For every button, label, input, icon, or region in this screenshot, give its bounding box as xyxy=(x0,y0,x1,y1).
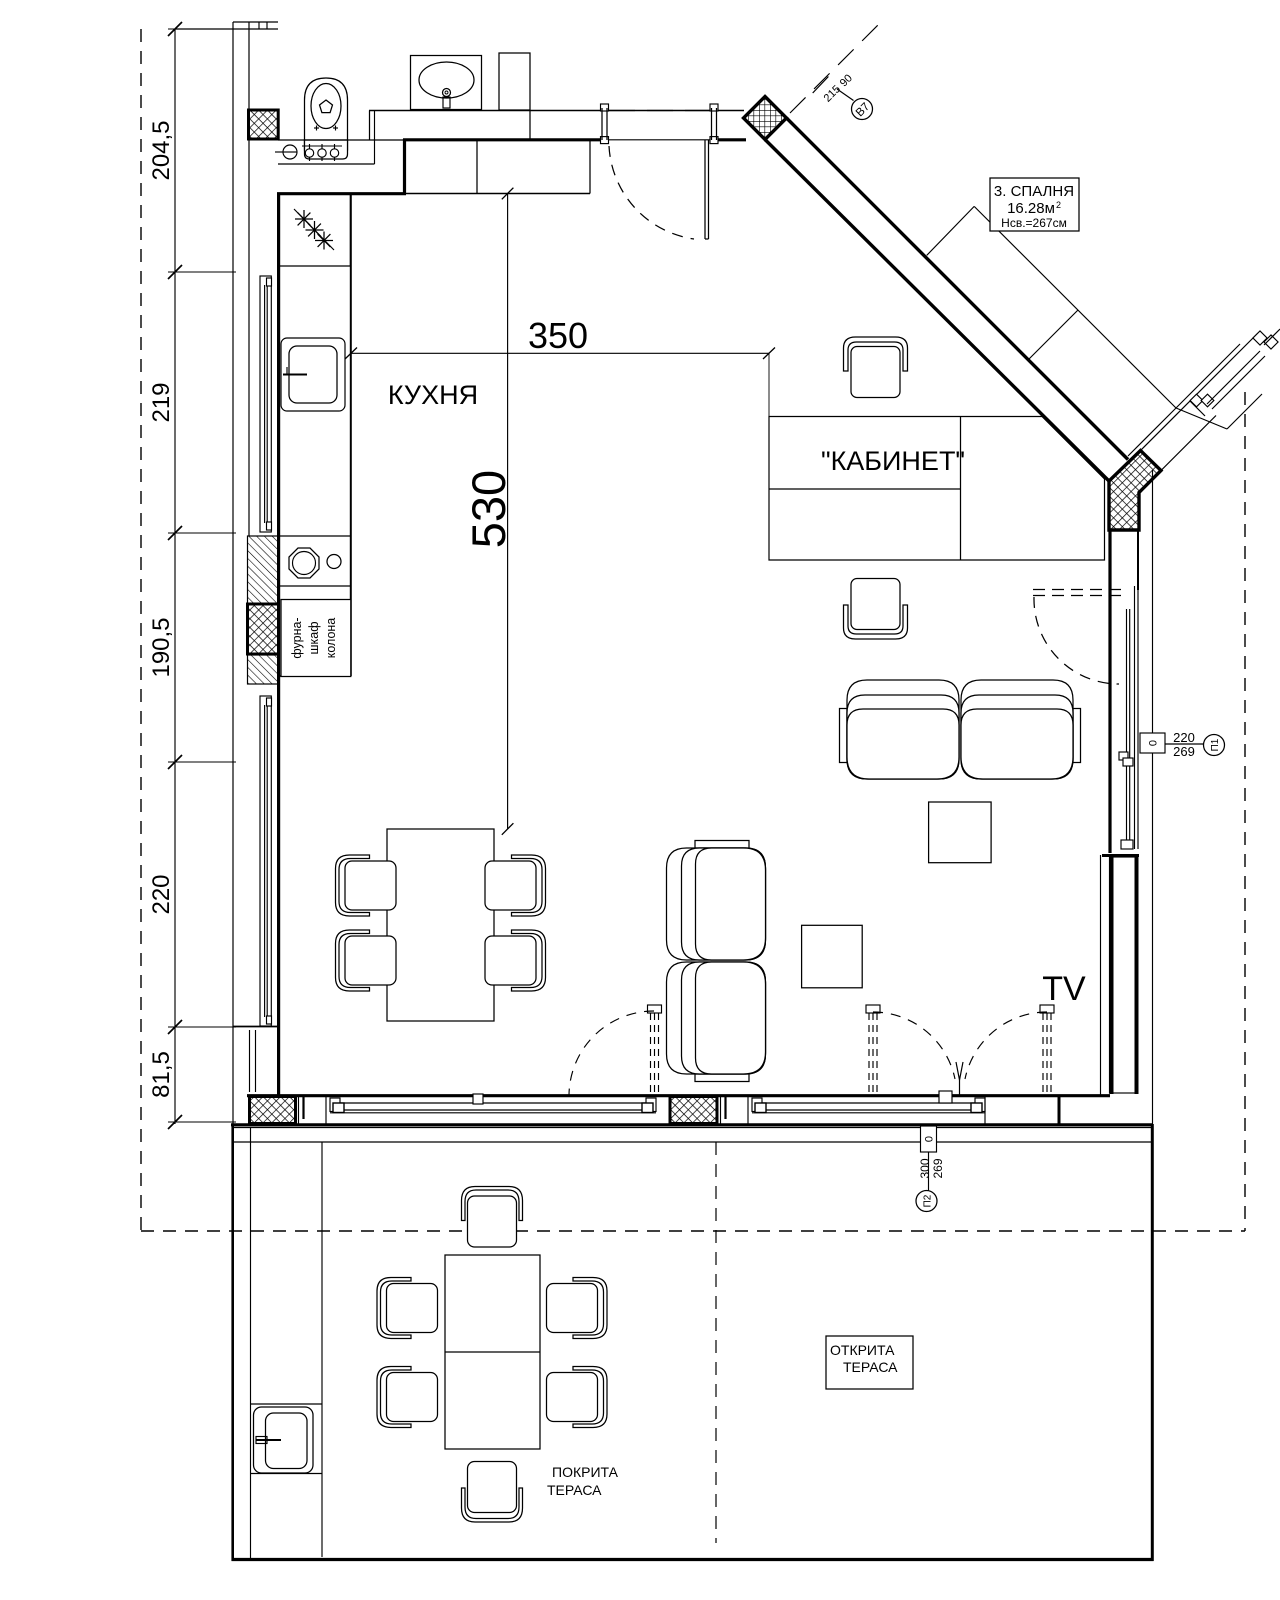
svg-text:П2: П2 xyxy=(923,1194,934,1207)
svg-text:колона: колона xyxy=(324,618,338,659)
svg-text:219: 219 xyxy=(148,382,175,422)
svg-text:ОТКРИТА: ОТКРИТА xyxy=(830,1342,895,1358)
svg-text:Нсв.=267см: Нсв.=267см xyxy=(1001,216,1067,230)
svg-text:300: 300 xyxy=(918,1158,932,1178)
svg-text:ПОКРИТА: ПОКРИТА xyxy=(552,1464,619,1480)
svg-text:КУХНЯ: КУХНЯ xyxy=(388,380,478,410)
svg-text:ТЕРАСА: ТЕРАСА xyxy=(843,1359,898,1375)
svg-text:0: 0 xyxy=(924,1136,936,1142)
svg-text:ТЕРАСА: ТЕРАСА xyxy=(547,1482,602,1498)
svg-text:350: 350 xyxy=(528,315,588,356)
svg-text:"КАБИНЕТ": "КАБИНЕТ" xyxy=(821,446,965,476)
svg-text:220: 220 xyxy=(1173,730,1195,745)
svg-text:530: 530 xyxy=(462,470,515,548)
svg-text:2: 2 xyxy=(1056,200,1061,210)
svg-text:220: 220 xyxy=(148,874,175,914)
svg-text:фурна-: фурна- xyxy=(290,617,304,658)
svg-text:3. СПАЛНЯ: 3. СПАЛНЯ xyxy=(994,183,1074,200)
svg-text:0: 0 xyxy=(1148,740,1160,746)
svg-text:269: 269 xyxy=(931,1158,945,1178)
svg-text:TV: TV xyxy=(1042,970,1086,1008)
svg-text:204,5: 204,5 xyxy=(148,120,175,180)
svg-text:шкаф: шкаф xyxy=(307,621,321,654)
svg-text:81,5: 81,5 xyxy=(148,1051,175,1098)
svg-text:16.28м: 16.28м xyxy=(1007,200,1055,217)
svg-text:269: 269 xyxy=(1173,744,1195,759)
svg-text:190,5: 190,5 xyxy=(148,617,175,677)
svg-text:П1: П1 xyxy=(1210,738,1221,751)
